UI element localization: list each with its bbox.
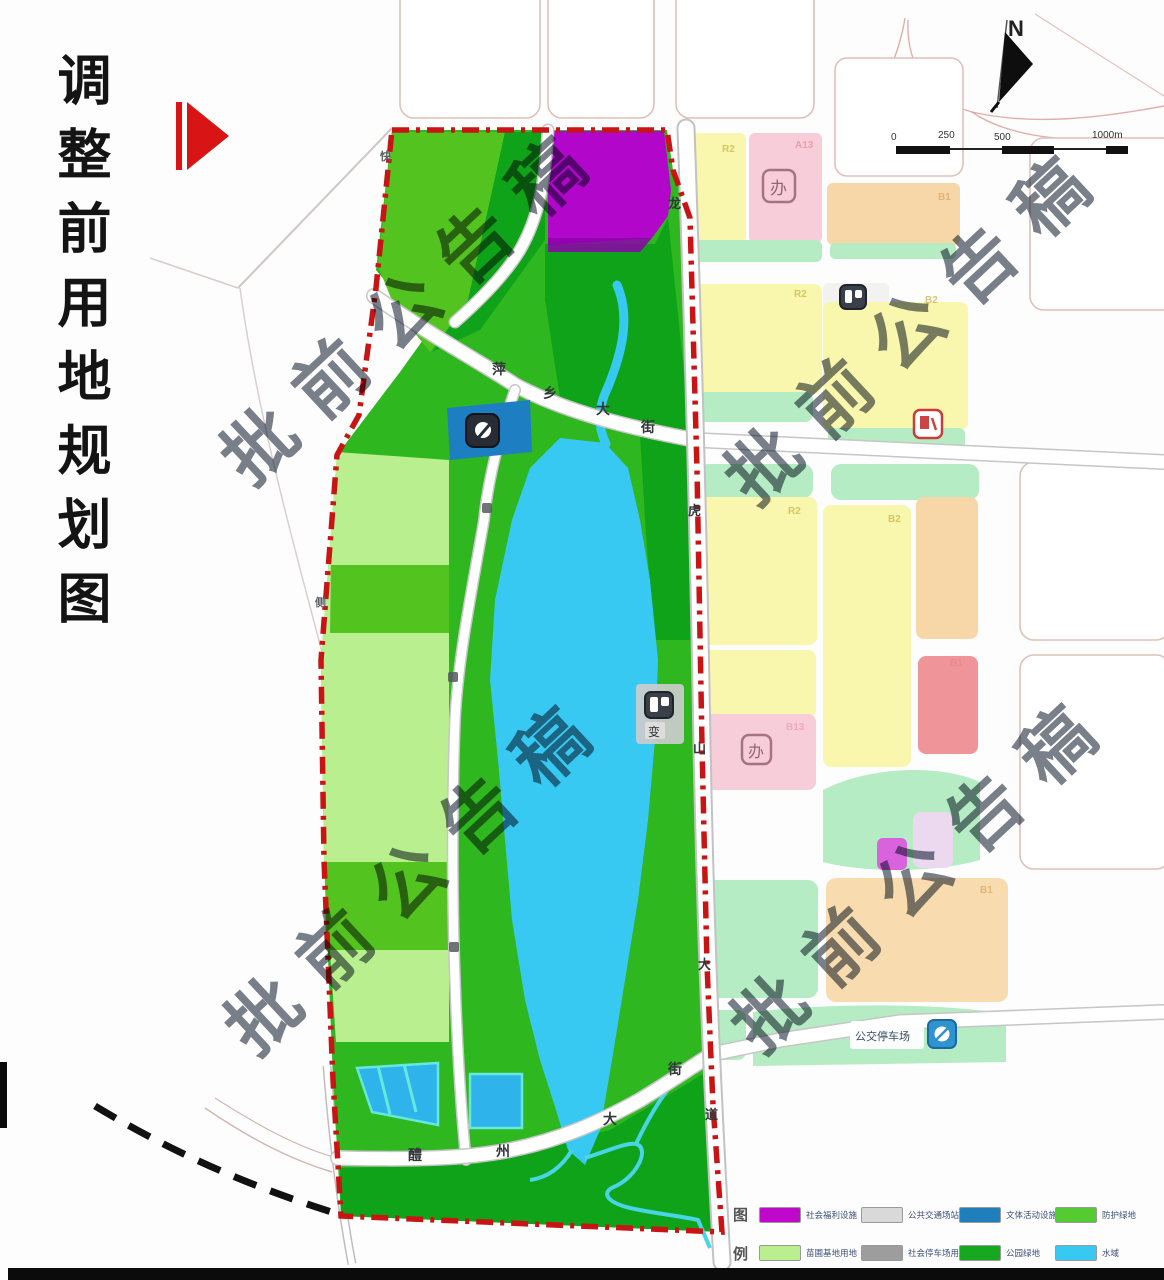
svg-text:B2: B2 [925,295,938,306]
svg-text:醴: 醴 [408,1147,422,1163]
svg-text:萍: 萍 [492,361,506,377]
svg-text:山: 山 [693,741,706,756]
planning-map-page: 变 办 办 [0,0,1164,1280]
svg-text:大: 大 [596,401,610,417]
legend-item: 水域 [1055,1245,1135,1261]
bus-depot-label-group: 公交停车场 [850,1020,956,1049]
north-arrow: N [991,16,1033,112]
legend-swatch [861,1207,903,1223]
svg-text:街: 街 [667,1061,682,1077]
svg-text:乡: 乡 [543,385,557,401]
svg-text:道: 道 [705,1107,718,1122]
svg-text:办: 办 [748,743,764,761]
city-blocks [688,133,1008,1066]
legend-swatch [959,1245,1001,1261]
substation-block: 变 [636,684,684,744]
legend-heading: 图例 [733,1202,759,1266]
legend: 图例 社会福利设施 公共交通场站用地 文体活动设施 防护绿地 [733,1202,1161,1266]
svg-text:B13: B13 [786,722,805,733]
map-canvas: 变 办 办 [0,0,1164,1280]
substation-label: 变 [648,724,660,739]
legend-item: 公园绿地 [959,1245,1055,1261]
svg-text:龙: 龙 [668,196,681,211]
legend-item: 社会停车场用地 [861,1245,959,1261]
svg-text:A13: A13 [795,140,814,151]
legend-swatch [759,1245,801,1261]
svg-text:R2: R2 [722,144,735,155]
red-flag-icon [176,102,236,174]
legend-swatch [959,1207,1001,1223]
svg-text:B2: B2 [888,514,901,525]
svg-text:虎: 虎 [688,503,701,518]
transit-facility-block [447,400,532,460]
svg-text:大: 大 [603,1111,617,1127]
svg-text:500: 500 [994,132,1011,143]
bus-depot-label: 公交停车场 [855,1029,910,1043]
svg-text:B1: B1 [980,885,993,896]
svg-text:办: 办 [770,179,787,198]
svg-text:州: 州 [495,1143,510,1159]
legend-swatch [759,1207,801,1223]
svg-text:B1: B1 [950,658,963,669]
substation-icon [645,692,673,718]
north-label: N [1008,16,1024,41]
legend-swatch [1055,1245,1097,1261]
svg-text:快: 快 [379,149,392,163]
legend-item: 文体活动设施 [959,1207,1055,1223]
legend-swatch [861,1245,903,1261]
legend-item: 苗圃基地用地 [759,1245,861,1261]
legend-item: 公共交通场站用地 [861,1207,959,1223]
red-station-icon [914,410,942,438]
photo-edge-bottom [8,1268,1164,1280]
svg-text:250: 250 [938,130,955,141]
svg-text:0: 0 [891,132,897,143]
purple-block [548,131,671,245]
svg-text:B1: B1 [938,192,951,203]
svg-text:1000m: 1000m [1092,130,1123,141]
photo-edge-left [0,1062,7,1128]
railway-line [95,1106,338,1214]
svg-text:街: 街 [640,419,655,435]
legend-item: 社会福利设施 [759,1207,861,1223]
legend-item: 防护绿地 [1055,1207,1135,1223]
svg-text:R2: R2 [794,289,807,300]
grey-facility-icon [840,285,866,309]
legend-swatch [1055,1207,1097,1223]
svg-text:大: 大 [698,957,711,972]
svg-text:侧: 侧 [315,595,326,609]
svg-text:R2: R2 [788,506,801,517]
page-title: 调整前用地规划图 [55,52,119,644]
